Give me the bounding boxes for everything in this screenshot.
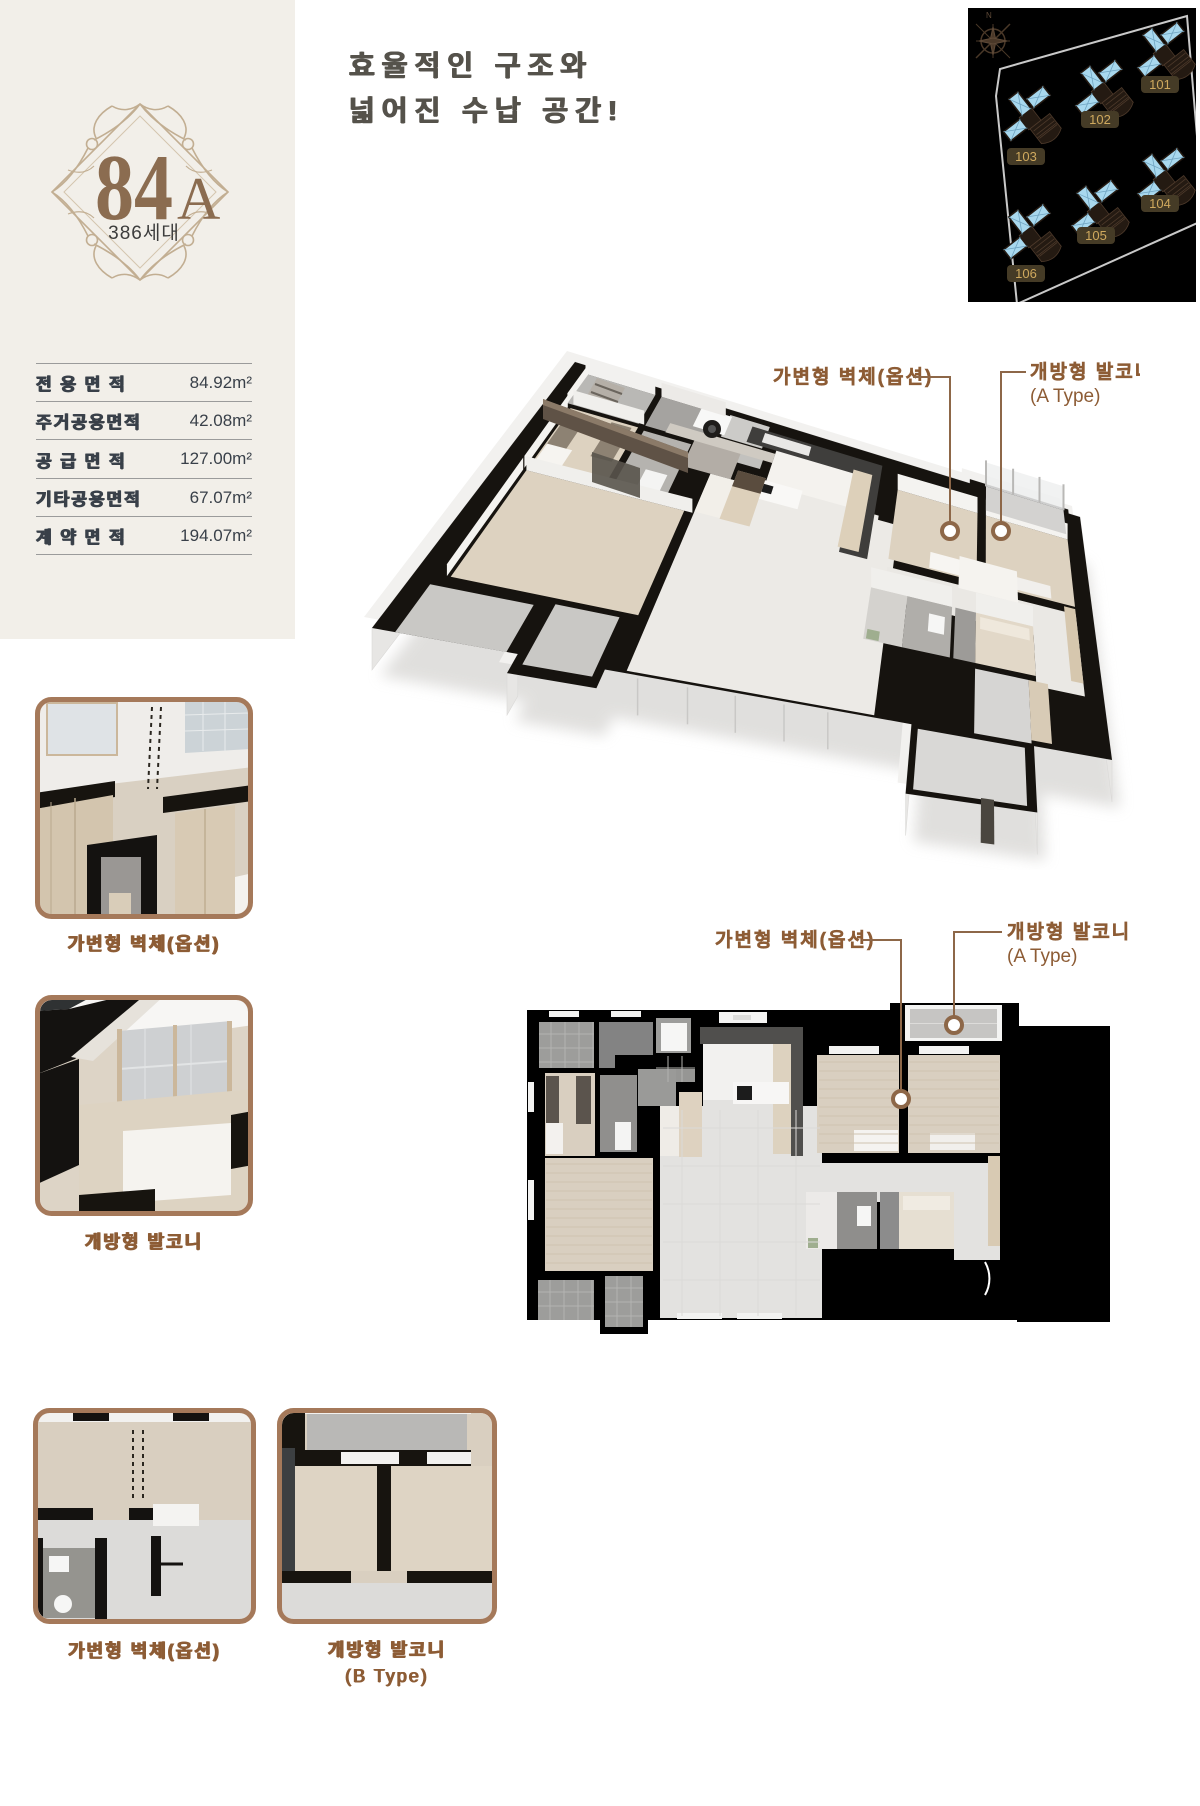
svg-text:106: 106 <box>1015 266 1037 281</box>
svg-text:가변형 벽체(옵션): 가변형 벽체(옵션) <box>715 929 875 951</box>
svg-text:(A Type): (A Type) <box>1007 946 1077 967</box>
svg-text:개방형 발코니: 개방형 발코니 <box>1007 921 1131 943</box>
svg-text:101: 101 <box>1149 77 1171 92</box>
svg-text:가변형 벽체(옵션): 가변형 벽체(옵션) <box>773 366 933 388</box>
svg-text:102: 102 <box>1089 112 1111 127</box>
svg-text:A: A <box>177 166 220 232</box>
svg-text:104: 104 <box>1149 196 1171 211</box>
svg-text:(A Type): (A Type) <box>1030 386 1100 407</box>
svg-text:개방형 발코니: 개방형 발코니 <box>1030 361 1140 383</box>
svg-text:N: N <box>986 11 992 20</box>
svg-text:103: 103 <box>1015 149 1037 164</box>
svg-text:386세대: 386세대 <box>108 222 180 244</box>
svg-text:105: 105 <box>1085 228 1107 243</box>
